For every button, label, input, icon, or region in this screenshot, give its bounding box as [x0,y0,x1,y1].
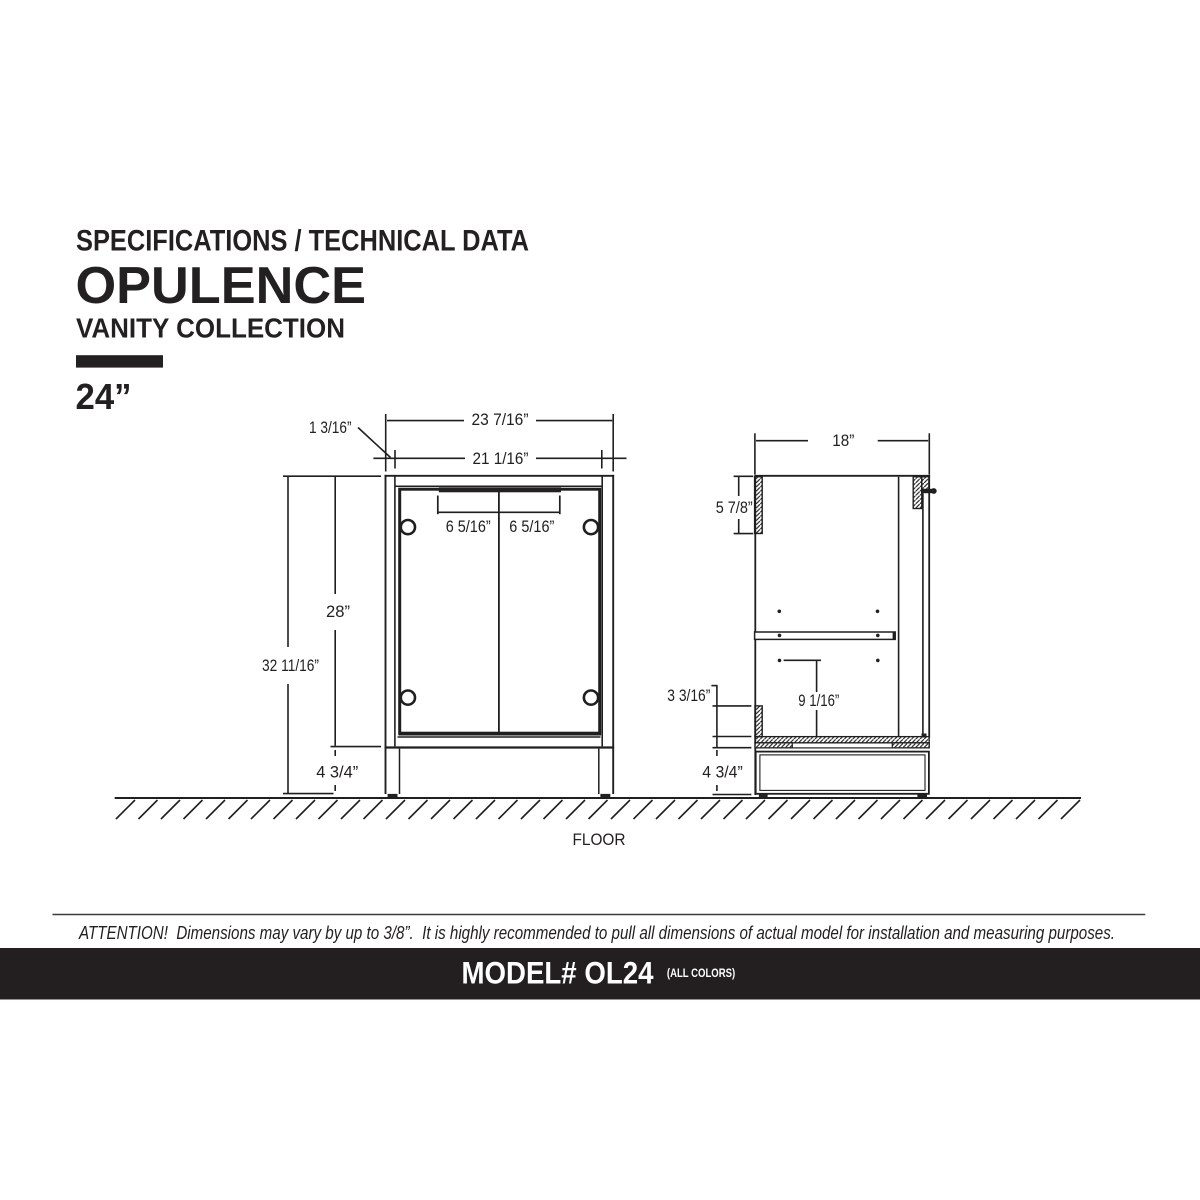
svg-text:6 5/16”: 6 5/16” [509,517,554,536]
svg-text:1 3/16”: 1 3/16” [309,418,352,437]
svg-text:4 3/4”: 4 3/4” [702,762,743,781]
svg-text:4 3/4”: 4 3/4” [316,762,358,781]
svg-text:ATTENTION! Dimensions may var: ATTENTION! Dimensions may vary by up to … [78,923,1115,943]
svg-text:9 1/16”: 9 1/16” [798,691,839,710]
svg-text:32 11/16”: 32 11/16” [262,656,319,675]
svg-text:23 7/16”: 23 7/16” [472,410,529,429]
svg-text:6 5/16”: 6 5/16” [446,517,491,536]
svg-text:24”: 24” [76,376,132,417]
svg-text:5 7/8”: 5 7/8” [716,498,753,517]
svg-text:MODEL# OL24: MODEL# OL24 [462,954,654,990]
svg-text:28”: 28” [326,602,350,621]
svg-text:18”: 18” [832,431,854,450]
svg-text:3 3/16”: 3 3/16” [667,686,710,705]
svg-text:OPULENCE: OPULENCE [76,256,367,314]
svg-text:21 1/16”: 21 1/16” [473,449,529,468]
svg-text:SPECIFICATIONS / TECHNICAL DAT: SPECIFICATIONS / TECHNICAL DATA [76,224,529,257]
svg-text:VANITY COLLECTION: VANITY COLLECTION [76,313,345,344]
svg-text:(ALL COLORS): (ALL COLORS) [667,966,735,980]
svg-text:FLOOR: FLOOR [573,830,626,849]
